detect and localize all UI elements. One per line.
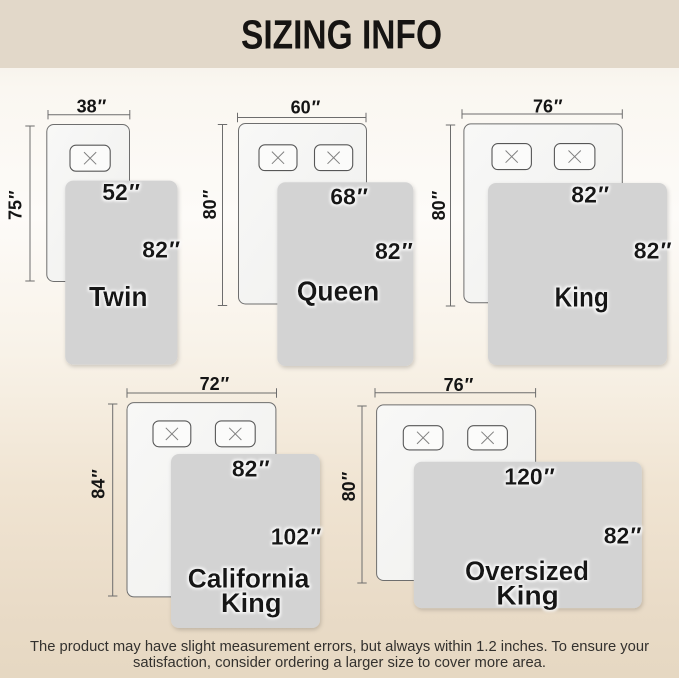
svg-text:Twin: Twin <box>89 281 148 312</box>
svg-text:82″: 82″ <box>571 181 609 207</box>
svg-text:60″: 60″ <box>291 98 321 118</box>
svg-text:82″: 82″ <box>634 238 672 264</box>
svg-text:82″: 82″ <box>375 238 413 264</box>
svg-text:King: King <box>555 282 609 313</box>
svg-text:The product may have slight me: The product may have slight measurement … <box>30 638 649 655</box>
svg-text:72″: 72″ <box>200 374 230 394</box>
svg-text:38″: 38″ <box>77 97 107 117</box>
svg-text:75″: 75″ <box>6 190 26 220</box>
svg-text:102″: 102″ <box>271 523 321 549</box>
svg-text:68″: 68″ <box>330 184 368 210</box>
svg-text:King: King <box>221 588 282 618</box>
svg-text:satisfaction, consider orderin: satisfaction, consider ordering a larger… <box>133 654 546 671</box>
svg-text:82″: 82″ <box>142 236 180 262</box>
svg-text:80″: 80″ <box>339 471 359 501</box>
svg-text:80″: 80″ <box>429 190 449 220</box>
svg-text:84″: 84″ <box>89 469 109 499</box>
svg-text:Queen: Queen <box>297 276 379 307</box>
svg-text:76″: 76″ <box>533 97 563 117</box>
svg-text:76″: 76″ <box>444 375 474 395</box>
svg-text:82″: 82″ <box>232 456 270 482</box>
svg-text:82″: 82″ <box>604 523 642 549</box>
svg-text:SIZING INFO: SIZING INFO <box>241 12 442 58</box>
svg-text:King: King <box>496 581 559 611</box>
svg-text:52″: 52″ <box>102 179 140 205</box>
svg-text:80″: 80″ <box>200 189 220 219</box>
svg-text:120″: 120″ <box>504 464 554 490</box>
